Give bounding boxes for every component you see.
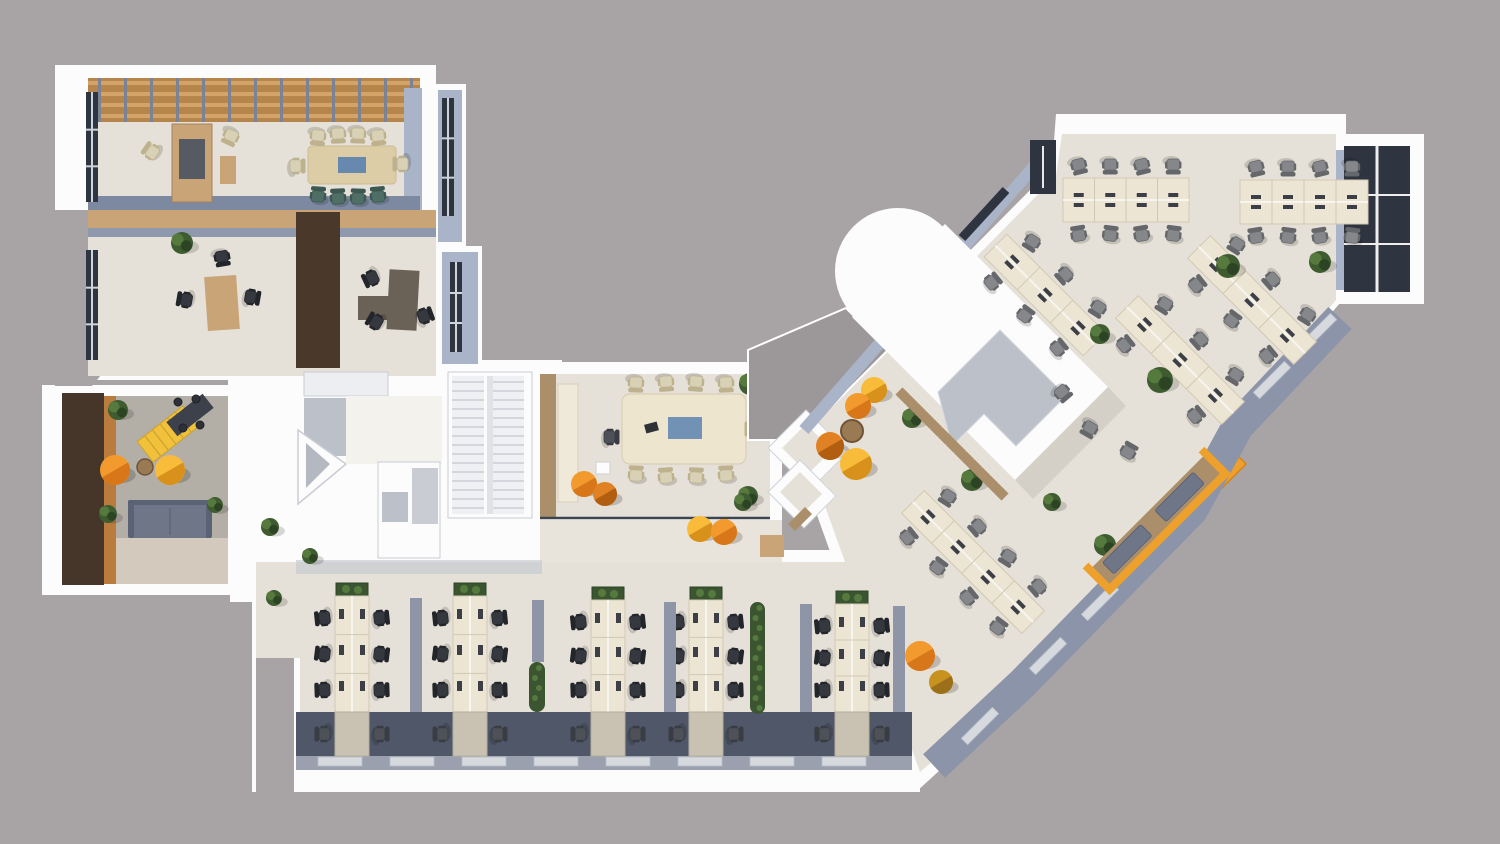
sofa: [128, 500, 212, 538]
core-room: [412, 468, 438, 524]
wall-face: [88, 228, 436, 237]
stool: [179, 424, 187, 432]
floor-plan-render: [0, 0, 1500, 844]
walkway: [296, 560, 542, 574]
slat-ceiling: [88, 78, 420, 122]
window: [86, 250, 98, 360]
core-room: [382, 492, 408, 522]
wood-wall: [62, 393, 104, 585]
partition: [410, 598, 422, 712]
sill-band: [296, 756, 912, 770]
hedge: [529, 662, 545, 712]
core-floor: [346, 396, 442, 464]
window: [442, 98, 454, 216]
facade-step: [256, 658, 294, 792]
wall-face: [404, 88, 422, 210]
stool: [174, 398, 182, 406]
partition: [532, 600, 544, 662]
hedge: [750, 602, 765, 714]
partition: [800, 604, 812, 712]
window: [86, 92, 98, 202]
core-room: [304, 372, 388, 396]
side-table: [220, 156, 236, 184]
facade-step: [226, 602, 252, 792]
light-pool: [116, 538, 228, 584]
floor-plan-canvas: [0, 0, 1500, 844]
accent-wall: [104, 396, 116, 584]
coffee-table: [137, 459, 153, 475]
timber-feature-wall: [296, 212, 340, 368]
staircase: [448, 372, 532, 518]
building: [42, 65, 1424, 792]
wood-floor: [760, 535, 784, 557]
cabinet-front: [179, 139, 205, 179]
side-table: [596, 462, 610, 474]
stool: [192, 395, 200, 403]
partition: [893, 606, 905, 712]
partition: [664, 602, 676, 712]
table-runner: [338, 157, 366, 173]
wood-wall: [540, 374, 556, 518]
coffee-table: [841, 420, 863, 442]
office-desk: [204, 275, 240, 331]
table-runner: [668, 417, 702, 439]
corridor-wood-floor: [88, 210, 436, 228]
stool: [196, 421, 204, 429]
window: [450, 262, 462, 352]
